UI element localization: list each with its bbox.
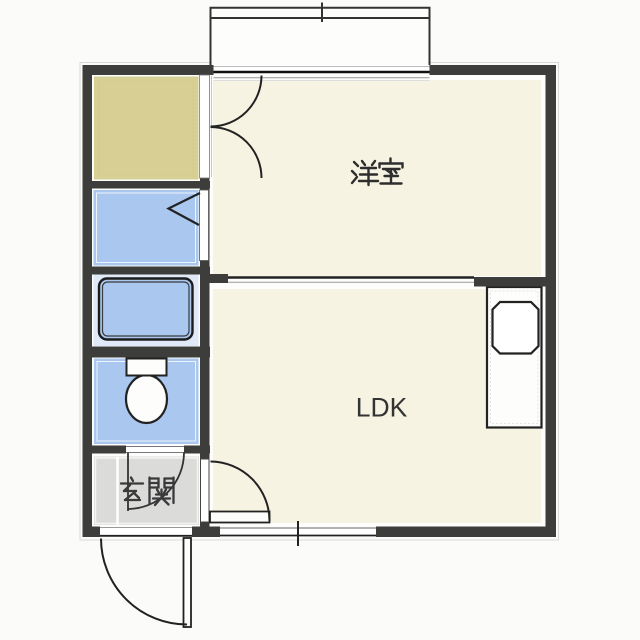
svg-text:LDK: LDK (356, 393, 408, 423)
